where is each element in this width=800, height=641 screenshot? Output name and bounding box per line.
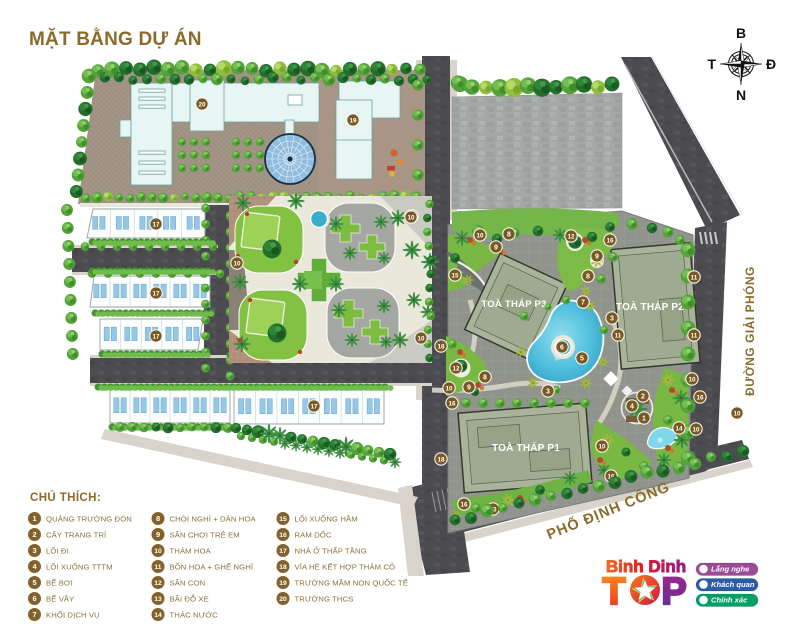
svg-text:11: 11 (691, 274, 698, 281)
svg-text:3: 3 (610, 315, 614, 322)
svg-text:KHỐI DỊCH VỤ: KHỐI DỊCH VỤ (46, 610, 100, 620)
svg-text:BỂ VẦY: BỂ VẦY (46, 594, 74, 604)
svg-text:BỒN HOA + GHẾ NGHỈ: BỒN HOA + GHẾ NGHỈ (170, 562, 254, 572)
svg-text:ĐƯỜNG GIẢI PHÓNG: ĐƯỜNG GIẢI PHÓNG (743, 266, 757, 396)
svg-text:2: 2 (641, 393, 645, 400)
svg-text:13: 13 (154, 596, 162, 603)
svg-text:11: 11 (615, 332, 622, 339)
svg-text:THẢM HOA: THẢM HOA (170, 547, 212, 556)
svg-text:11: 11 (154, 564, 161, 571)
svg-text:Lắng nghe: Lắng nghe (711, 565, 750, 574)
svg-text:SÂN CON: SÂN CON (170, 579, 206, 588)
svg-text:12: 12 (567, 233, 575, 240)
svg-text:10: 10 (688, 376, 696, 383)
svg-text:6: 6 (560, 344, 564, 351)
svg-text:TRƯỜNG MẦM NON QUỐC TẾ: TRƯỜNG MẦM NON QUỐC TẾ (295, 578, 408, 588)
svg-text:1: 1 (32, 514, 36, 523)
svg-text:10: 10 (154, 548, 162, 555)
svg-text:10: 10 (476, 232, 484, 239)
svg-text:6: 6 (32, 594, 36, 603)
svg-text:8: 8 (156, 514, 160, 523)
svg-text:TOÀ THÁP P2: TOÀ THÁP P2 (616, 300, 684, 313)
svg-text:9: 9 (156, 530, 160, 539)
svg-text:7: 7 (581, 299, 585, 306)
svg-text:10: 10 (417, 335, 425, 342)
svg-text:TRƯỜNG THCS: TRƯỜNG THCS (295, 595, 354, 604)
svg-text:17: 17 (279, 548, 287, 555)
svg-text:17: 17 (152, 221, 160, 228)
svg-text:10: 10 (445, 385, 453, 392)
svg-text:CHÚ THÍCH:: CHÚ THÍCH: (30, 491, 101, 504)
svg-text:18: 18 (437, 456, 445, 463)
svg-text:3: 3 (32, 546, 36, 555)
svg-text:10: 10 (598, 443, 606, 450)
svg-text:12: 12 (452, 365, 460, 372)
svg-text:CÂY TRANG TRÍ: CÂY TRANG TRÍ (46, 531, 107, 540)
svg-text:TOÀ THÁP P3: TOÀ THÁP P3 (481, 298, 546, 310)
svg-text:N: N (736, 87, 746, 103)
svg-text:9: 9 (467, 384, 471, 391)
svg-text:16: 16 (460, 501, 468, 508)
svg-text:CHÒI NGHỈ + DÀN HOA: CHÒI NGHỈ + DÀN HOA (170, 515, 257, 524)
svg-text:TOÀ THÁP P1: TOÀ THÁP P1 (492, 441, 560, 454)
svg-text:14: 14 (154, 612, 162, 619)
svg-text:T: T (602, 571, 625, 613)
svg-text:Khách quan: Khách quan (711, 580, 755, 589)
svg-text:B: B (736, 25, 746, 41)
svg-text:18: 18 (279, 564, 287, 571)
svg-text:Đ: Đ (766, 56, 776, 72)
svg-text:Chính xác: Chính xác (711, 596, 748, 605)
svg-text:20: 20 (198, 101, 206, 108)
svg-text:P: P (661, 571, 686, 613)
svg-text:QUẢNG TRƯỜNG ĐÓN: QUẢNG TRƯỜNG ĐÓN (46, 515, 132, 524)
svg-text:MẶT BẰNG DỰ ÁN: MẶT BẰNG DỰ ÁN (29, 28, 202, 50)
svg-text:NHÀ Ở THẤP TẦNG: NHÀ Ở THẤP TẦNG (295, 546, 367, 556)
svg-text:9: 9 (595, 253, 599, 260)
svg-text:10: 10 (407, 214, 415, 221)
svg-text:15: 15 (279, 516, 287, 523)
svg-text:16: 16 (696, 394, 704, 401)
svg-text:19: 19 (349, 117, 357, 124)
svg-text:17: 17 (310, 403, 318, 410)
svg-text:9: 9 (494, 244, 498, 251)
svg-text:17: 17 (152, 290, 160, 297)
svg-text:7: 7 (32, 610, 36, 619)
svg-text:10: 10 (233, 260, 241, 267)
svg-text:BÃI ĐỖ XE: BÃI ĐỖ XE (170, 595, 209, 604)
svg-text:10: 10 (692, 426, 700, 433)
svg-text:LỐI ĐI: LỐI ĐI (46, 546, 69, 556)
svg-text:T: T (707, 56, 716, 72)
svg-text:12: 12 (154, 580, 162, 587)
svg-text:15: 15 (451, 272, 459, 279)
svg-text:5: 5 (580, 355, 584, 362)
svg-text:2: 2 (32, 530, 36, 539)
svg-text:19: 19 (279, 580, 287, 587)
svg-text:8: 8 (483, 374, 487, 381)
svg-text:20: 20 (279, 596, 287, 603)
svg-text:16: 16 (606, 237, 614, 244)
svg-text:18: 18 (437, 343, 445, 350)
svg-text:THÁC NƯỚC: THÁC NƯỚC (170, 611, 219, 620)
svg-text:14: 14 (675, 425, 683, 432)
svg-text:8: 8 (586, 273, 590, 280)
svg-text:LỐI XUỐNG TTTM: LỐI XUỐNG TTTM (46, 562, 113, 572)
svg-text:16: 16 (448, 400, 456, 407)
svg-text:11: 11 (691, 332, 698, 339)
svg-text:5: 5 (32, 578, 36, 587)
svg-text:4: 4 (630, 403, 634, 410)
svg-text:8: 8 (507, 231, 511, 238)
svg-text:17: 17 (152, 333, 160, 340)
svg-text:16: 16 (279, 532, 287, 539)
svg-text:10: 10 (733, 410, 741, 417)
svg-text:LỐI XUỐNG HẦM: LỐI XUỐNG HẦM (295, 514, 358, 524)
svg-text:BỂ BƠI: BỂ BƠI (46, 579, 73, 588)
svg-text:RAM DỐC: RAM DỐC (295, 530, 332, 540)
svg-text:3: 3 (546, 388, 550, 395)
svg-text:1: 1 (642, 415, 646, 422)
svg-text:VỈA HÈ KẾT HỢP THẢM CỎ: VỈA HÈ KẾT HỢP THẢM CỎ (295, 562, 396, 572)
svg-text:SÂN CHƠI TRẺ EM: SÂN CHƠI TRẺ EM (170, 531, 240, 540)
